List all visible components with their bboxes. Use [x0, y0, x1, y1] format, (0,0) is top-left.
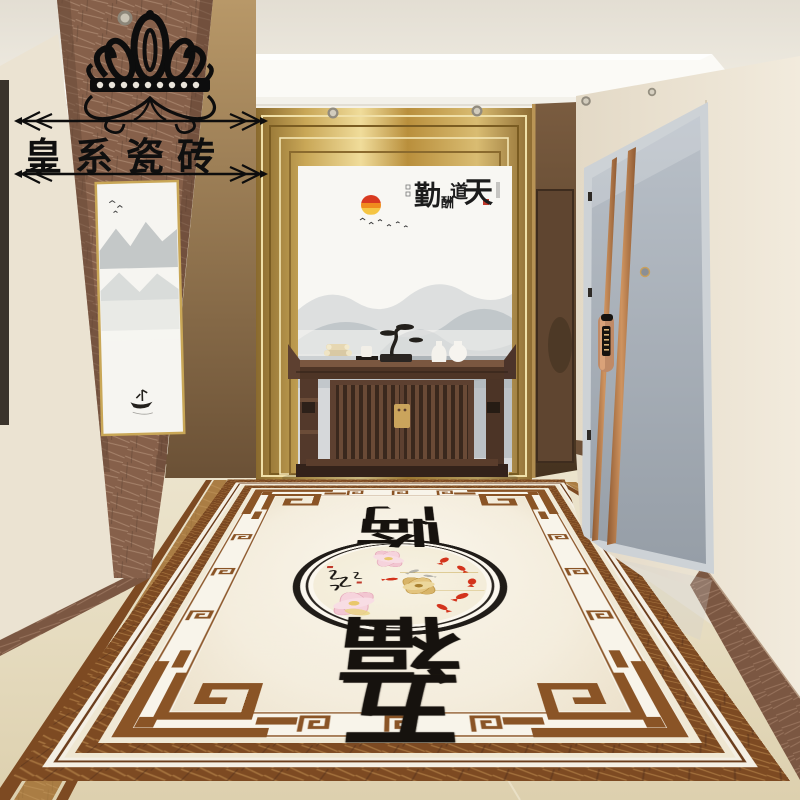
hallway-scene: 勤 酬 道 天 — [0, 0, 800, 800]
bonsai-base — [380, 354, 412, 362]
crown-flourish-icon — [86, 10, 215, 133]
side-painting — [96, 181, 185, 435]
corridor — [532, 102, 578, 478]
brass-lock-plate — [394, 404, 410, 428]
mural-char: 勤 — [414, 183, 441, 210]
spotlight-icon — [648, 88, 656, 96]
smart-lock — [598, 314, 614, 372]
peephole — [641, 268, 650, 277]
carpet-char-lin: 临 — [354, 517, 446, 547]
hinge — [588, 288, 592, 297]
spotlight-icon — [472, 106, 483, 117]
hinge — [588, 192, 592, 201]
white-vase-round — [449, 344, 467, 362]
brand-text: 皇系瓷砖 — [24, 126, 268, 181]
carpet-char-wu: 五 — [329, 667, 471, 752]
shelf-books — [302, 402, 315, 413]
mural-char: 天 — [464, 178, 493, 207]
spotlight-icon — [328, 108, 339, 119]
hinge — [587, 430, 591, 440]
spotlight-icon — [581, 96, 591, 106]
tea-cup — [361, 346, 372, 357]
